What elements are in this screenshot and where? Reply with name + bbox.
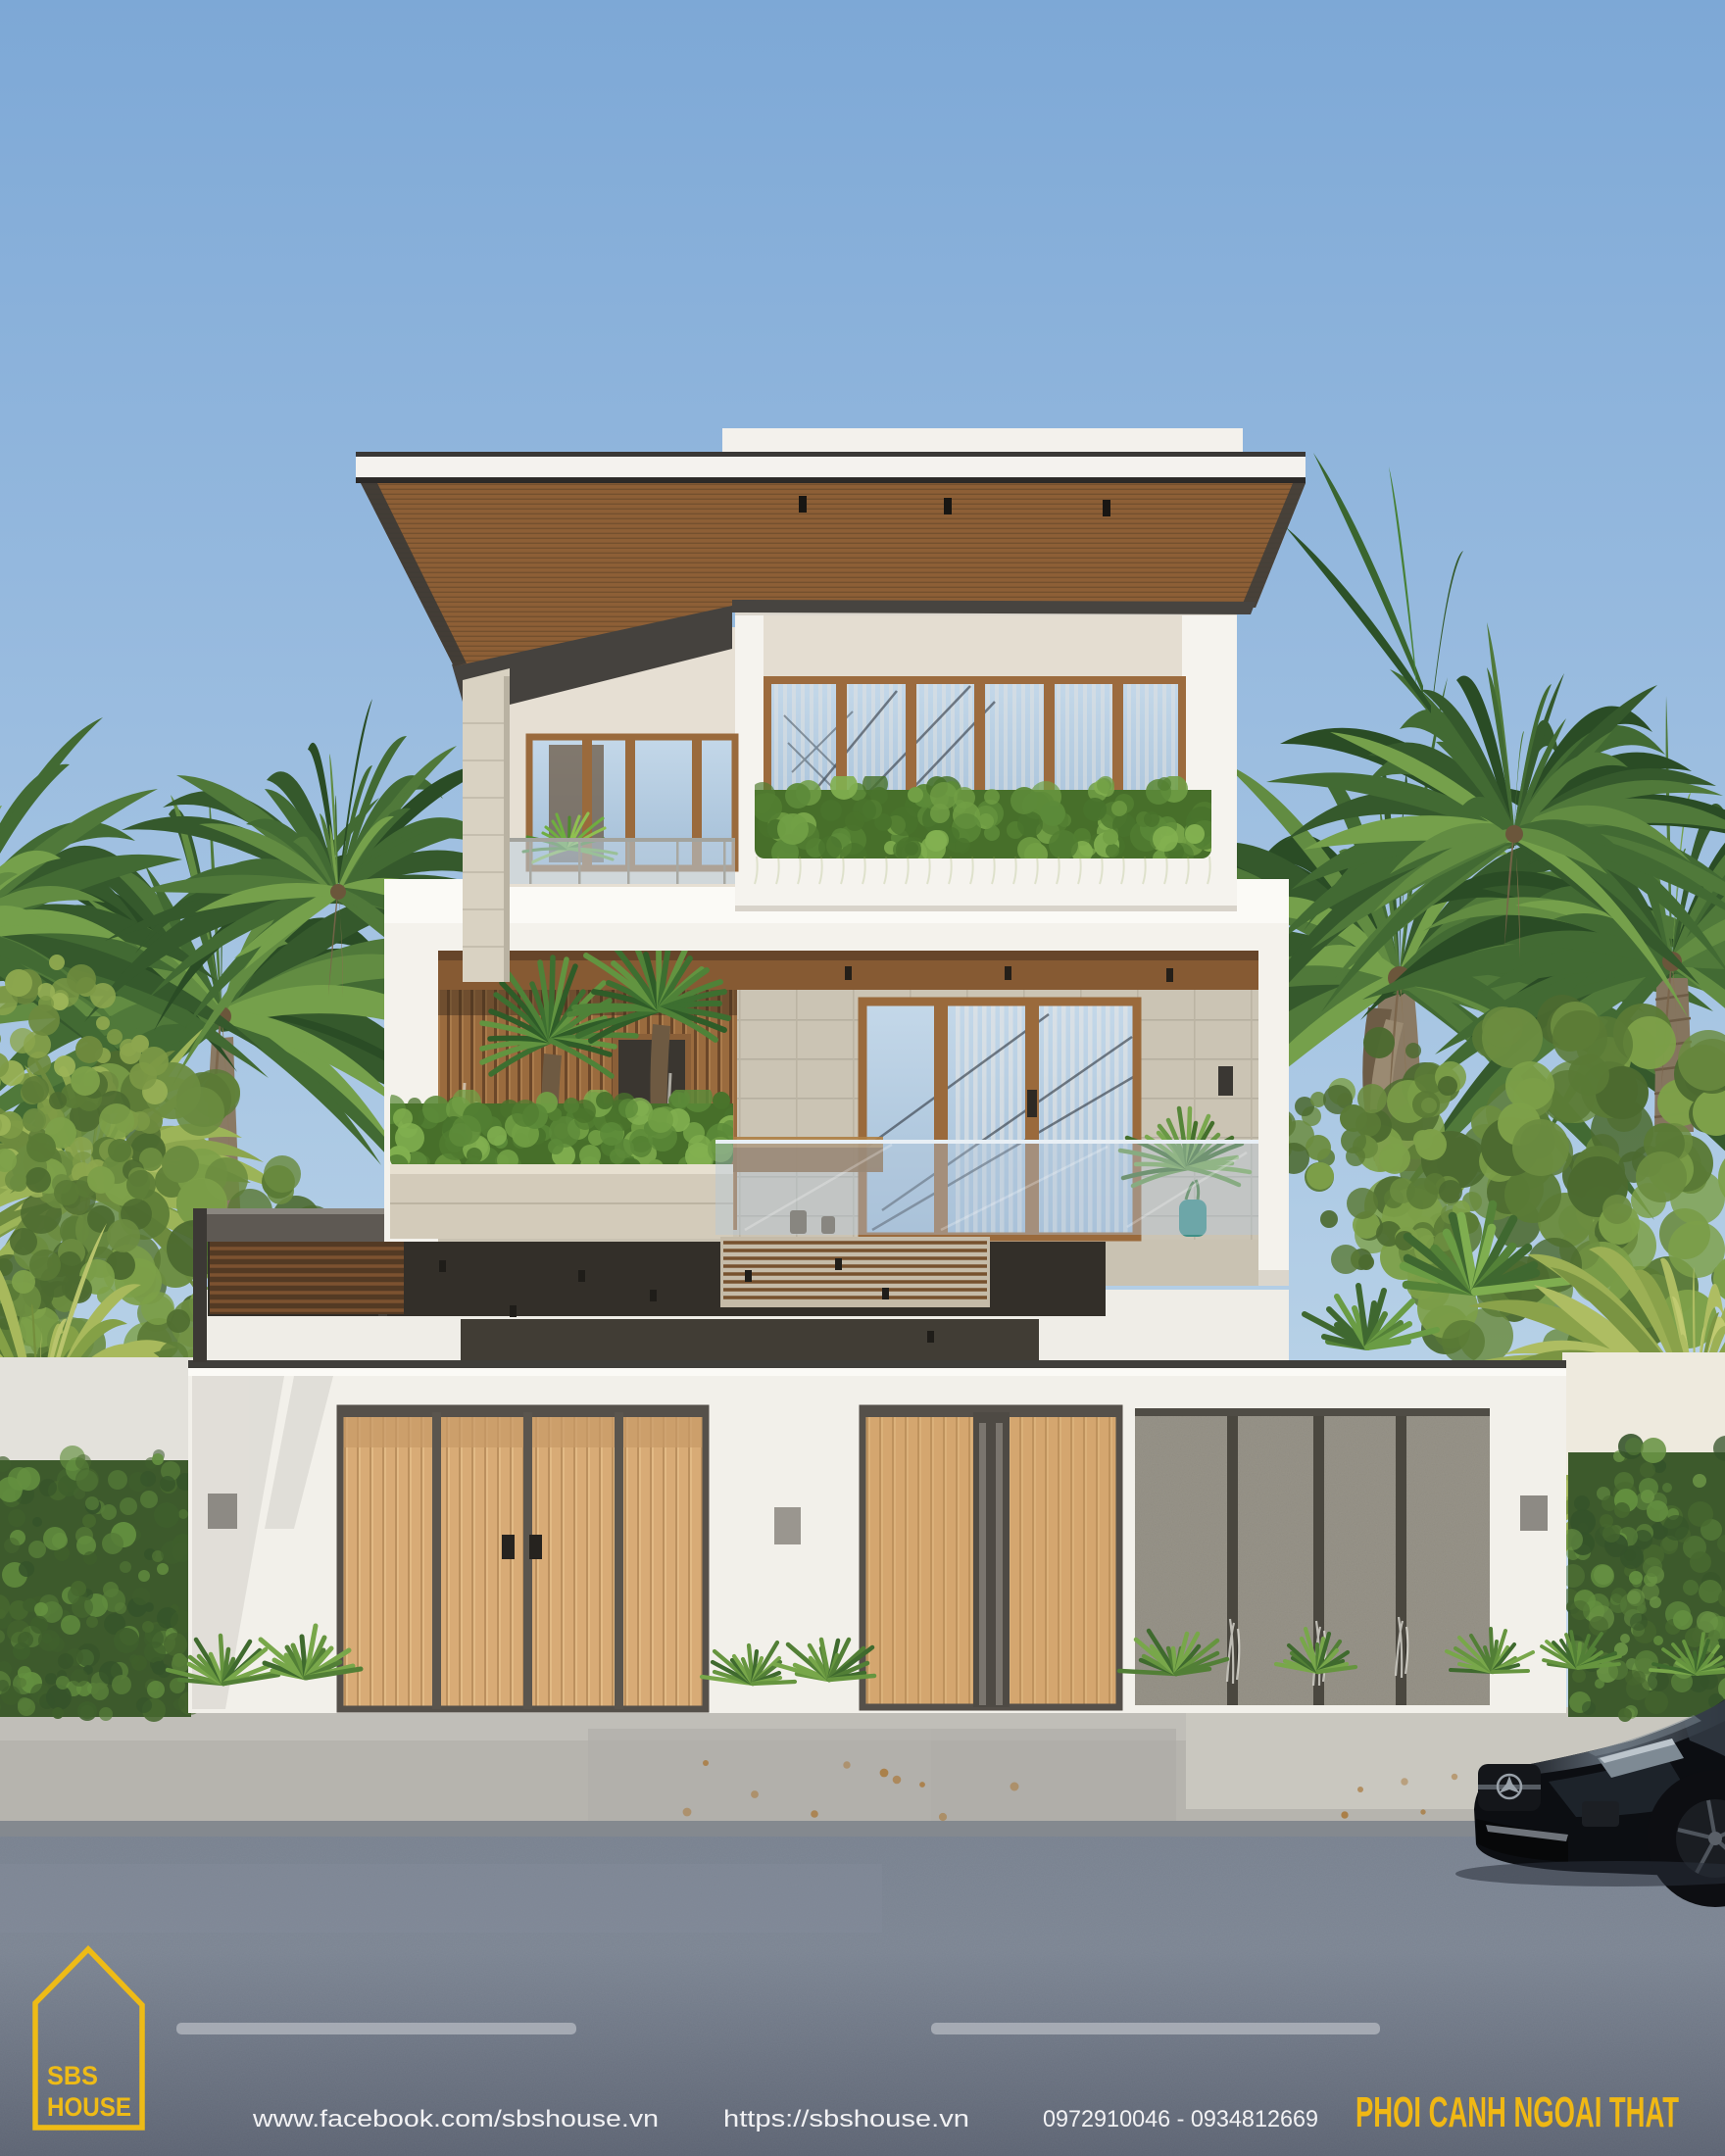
- svg-text:SBS: SBS: [47, 2061, 98, 2090]
- svg-text:https://sbshouse.vn: https://sbshouse.vn: [723, 2106, 969, 2132]
- svg-text:www.facebook.com/sbshouse.vn: www.facebook.com/sbshouse.vn: [252, 2106, 659, 2132]
- svg-text:HOUSE: HOUSE: [47, 2092, 131, 2122]
- svg-text:PHOI CANH NGOAI THAT: PHOI CANH NGOAI THAT: [1355, 2088, 1679, 2136]
- svg-text:0972910046 - 0934812669: 0972910046 - 0934812669: [1043, 2106, 1318, 2132]
